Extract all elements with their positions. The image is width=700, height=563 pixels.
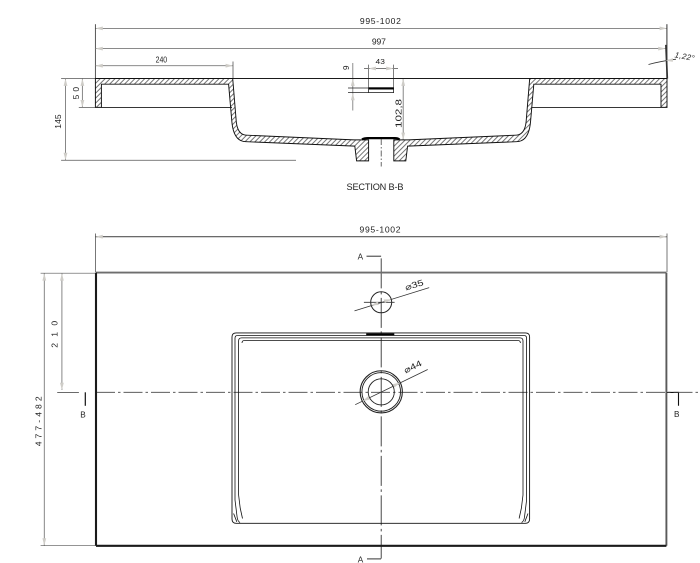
svg-text:9: 9 bbox=[342, 65, 351, 70]
svg-text:210: 210 bbox=[50, 321, 60, 348]
svg-text:997: 997 bbox=[372, 37, 386, 47]
svg-text:145: 145 bbox=[53, 114, 63, 129]
svg-text:102,8: 102,8 bbox=[394, 99, 404, 128]
svg-text:SECTION B-B: SECTION B-B bbox=[347, 182, 404, 192]
svg-text:240: 240 bbox=[156, 54, 168, 64]
svg-text:A: A bbox=[358, 253, 364, 262]
svg-text:43: 43 bbox=[376, 57, 385, 66]
svg-text:995-1002: 995-1002 bbox=[360, 225, 401, 235]
svg-text:B: B bbox=[80, 411, 86, 420]
svg-text:A: A bbox=[358, 556, 364, 563]
svg-text:995-1002: 995-1002 bbox=[360, 16, 401, 26]
svg-text:B: B bbox=[674, 410, 680, 419]
